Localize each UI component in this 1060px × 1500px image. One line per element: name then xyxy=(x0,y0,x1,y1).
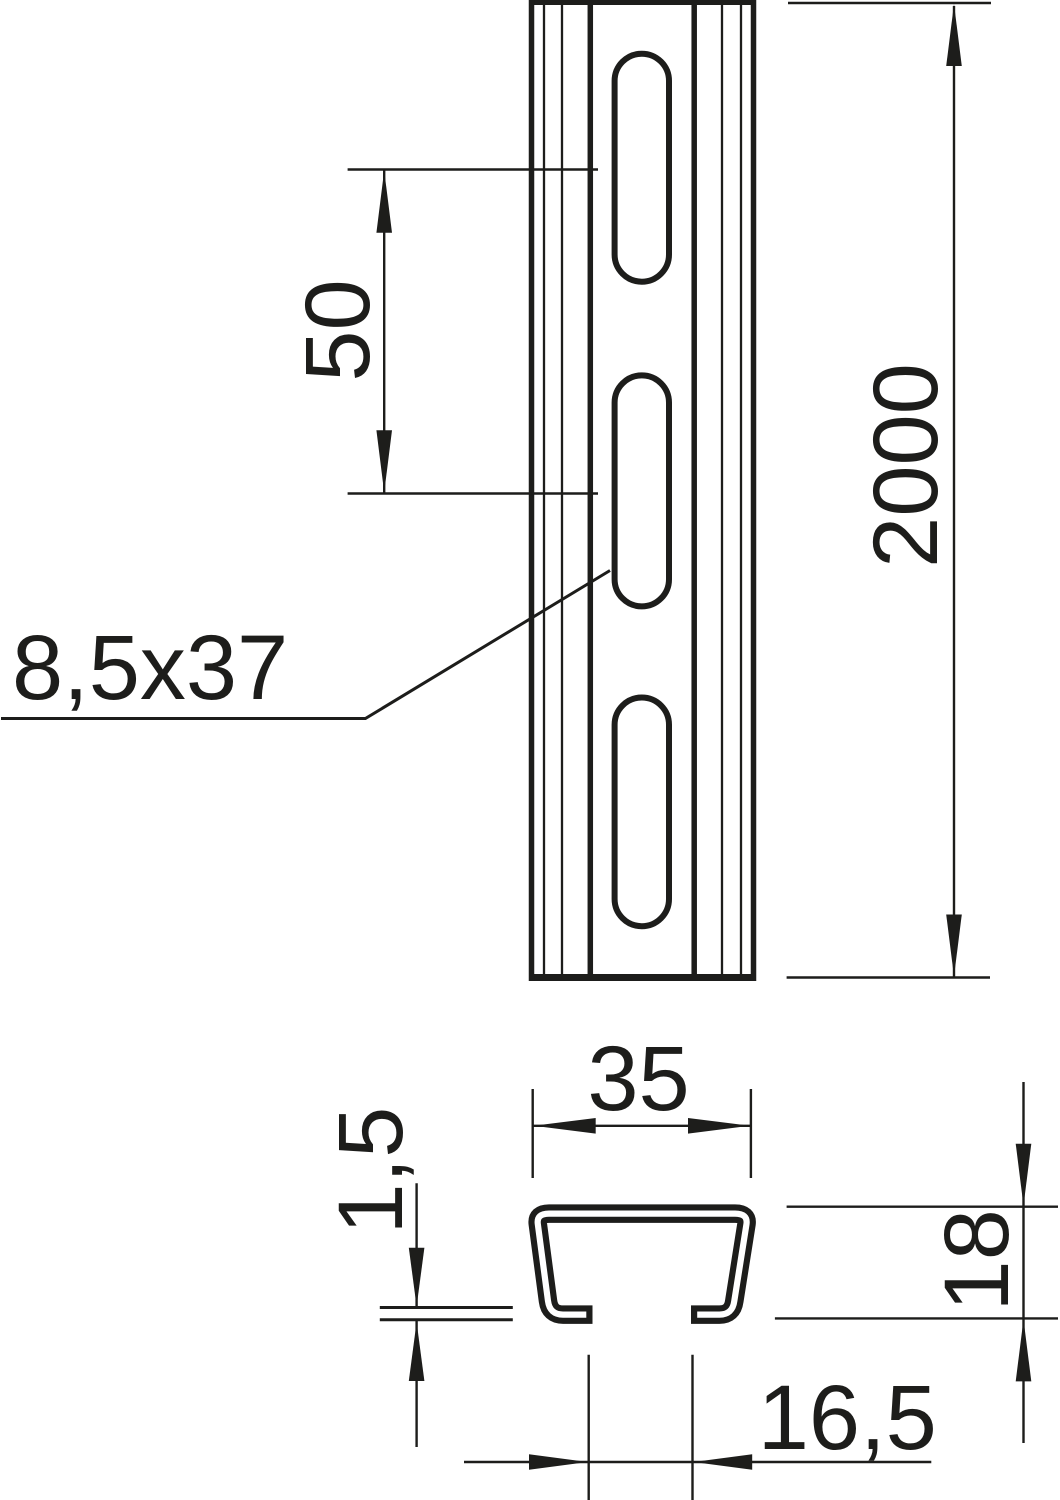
svg-text:50: 50 xyxy=(287,279,389,381)
svg-text:2000: 2000 xyxy=(855,363,957,568)
svg-text:8,5x37: 8,5x37 xyxy=(12,617,288,719)
svg-text:16,5: 16,5 xyxy=(758,1367,937,1469)
svg-text:18: 18 xyxy=(926,1209,1028,1311)
svg-text:35: 35 xyxy=(587,1028,689,1130)
svg-text:1,5: 1,5 xyxy=(320,1107,422,1235)
